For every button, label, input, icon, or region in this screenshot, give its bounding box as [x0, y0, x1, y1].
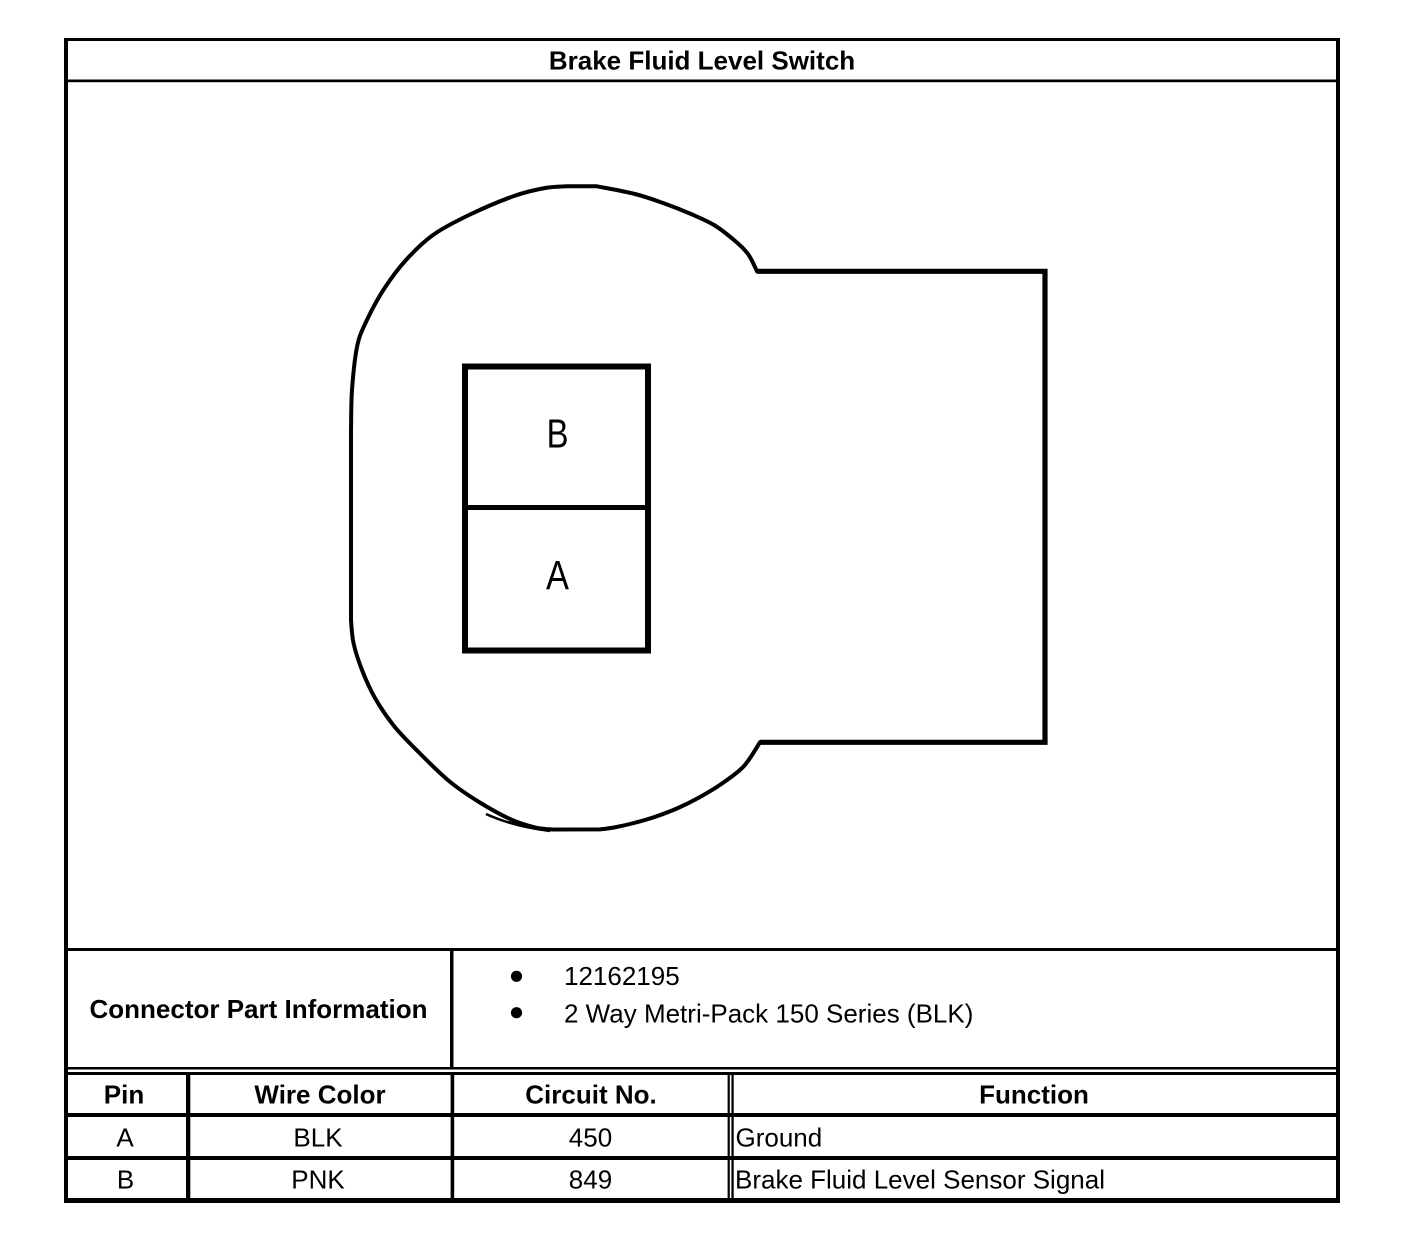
- svg-text:Brake Fluid Level Switch: Brake Fluid Level Switch: [549, 46, 855, 76]
- svg-text:Connector Part Information: Connector Part Information: [89, 994, 427, 1024]
- svg-text:B: B: [547, 410, 569, 456]
- svg-text:BLK: BLK: [293, 1123, 343, 1153]
- svg-text:PNK: PNK: [291, 1165, 345, 1195]
- svg-text:Function: Function: [979, 1080, 1089, 1110]
- svg-text:Wire Color: Wire Color: [254, 1080, 385, 1110]
- svg-text:Pin: Pin: [104, 1080, 144, 1110]
- svg-text:A: A: [546, 553, 570, 598]
- svg-text:849: 849: [569, 1165, 612, 1195]
- svg-text:2 Way Metri-Pack 150 Series (B: 2 Way Metri-Pack 150 Series (BLK): [564, 999, 973, 1029]
- svg-text:A: A: [116, 1123, 134, 1153]
- svg-text:12162195: 12162195: [564, 961, 680, 991]
- svg-text:450: 450: [569, 1123, 612, 1153]
- svg-text:Brake Fluid Level Sensor Signa: Brake Fluid Level Sensor Signal: [735, 1165, 1105, 1195]
- svg-text:Ground: Ground: [736, 1123, 823, 1153]
- svg-text:B: B: [117, 1165, 134, 1195]
- svg-text:Circuit No.: Circuit No.: [525, 1080, 656, 1110]
